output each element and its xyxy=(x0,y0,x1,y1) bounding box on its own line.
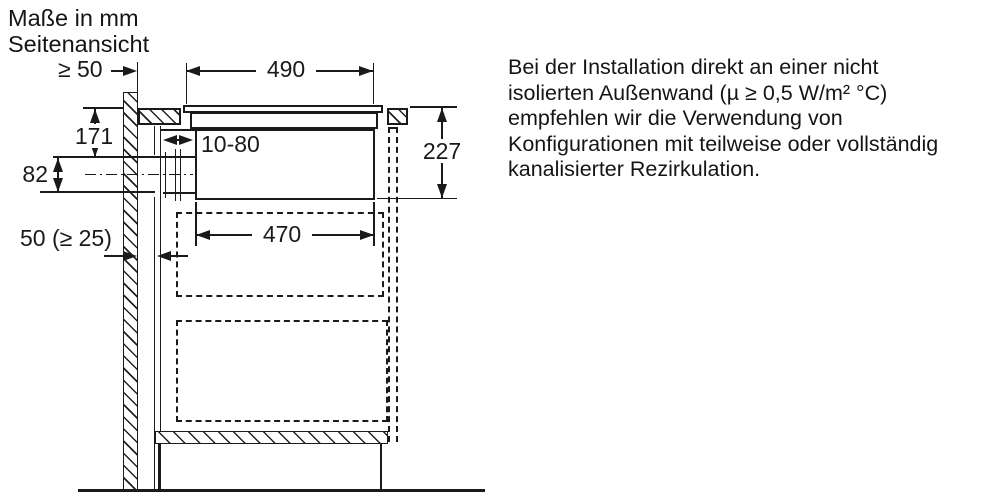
arrow-down-icon xyxy=(437,184,447,198)
note-line: empfehlen wir die Verwendung von xyxy=(508,106,938,132)
note-line: Konfigurationen mit teilweise oder volls… xyxy=(508,132,938,158)
extension-line xyxy=(377,198,457,200)
extension-line xyxy=(53,156,176,158)
extension-line xyxy=(83,107,123,109)
dimension-line xyxy=(171,255,188,257)
drawing-title: Maße in mm Seitenansicht xyxy=(8,6,149,57)
arrow-right-icon xyxy=(360,230,374,240)
worktop-left xyxy=(138,108,181,125)
arrow-up-icon xyxy=(90,109,100,123)
title-units: Maße in mm xyxy=(8,6,149,32)
arrow-left-icon xyxy=(196,230,210,240)
plinth xyxy=(158,444,382,490)
arrow-right-icon xyxy=(179,135,193,145)
arrow-up-icon xyxy=(437,108,447,122)
installation-note: Bei der Installation direkt an einer nic… xyxy=(508,55,938,183)
note-line: kanalisierter Rezirkulation. xyxy=(508,157,938,183)
arrow-up-icon xyxy=(53,158,63,172)
note-line: Bei der Installation direkt an einer nic… xyxy=(508,55,938,81)
dim-label: 171 xyxy=(72,124,116,148)
worktop-right xyxy=(387,108,408,125)
dim-label: 470 xyxy=(252,222,312,246)
dim-label: 227 xyxy=(416,139,468,163)
extension-line xyxy=(160,129,196,130)
note-line: isolierten Außenwand (µ ≥ 0,5 W/m² °C) xyxy=(508,81,938,107)
floor-line xyxy=(78,489,485,492)
title-view: Seitenansicht xyxy=(8,32,149,58)
arrow-right-icon xyxy=(359,66,373,76)
dim-label: ≥ 50 xyxy=(58,57,103,81)
cabinet-zone-lower-dashed xyxy=(176,320,388,422)
arrow-left-icon xyxy=(186,66,200,76)
dimension-line xyxy=(104,255,124,257)
dim-label: 490 xyxy=(256,57,316,81)
dim-label: 50 (≥ 25) xyxy=(20,226,112,250)
dim-label: 10-80 xyxy=(201,132,260,156)
hob-body xyxy=(190,112,378,129)
arrow-left-icon xyxy=(163,135,177,145)
installation-diagram: Maße in mm Seitenansicht Bei der Install… xyxy=(0,0,1000,500)
air-channel-dashed xyxy=(388,127,398,442)
extension-line xyxy=(410,106,457,108)
arrow-down-icon xyxy=(53,178,63,192)
arrow-right-icon xyxy=(123,66,137,76)
arrow-right-icon xyxy=(123,251,137,261)
arrow-left-icon xyxy=(157,251,171,261)
dim-label: 82 xyxy=(12,162,48,186)
wall-section xyxy=(123,92,138,490)
duct-center-line xyxy=(85,174,193,176)
cabinet-bottom-shelf xyxy=(155,431,388,444)
